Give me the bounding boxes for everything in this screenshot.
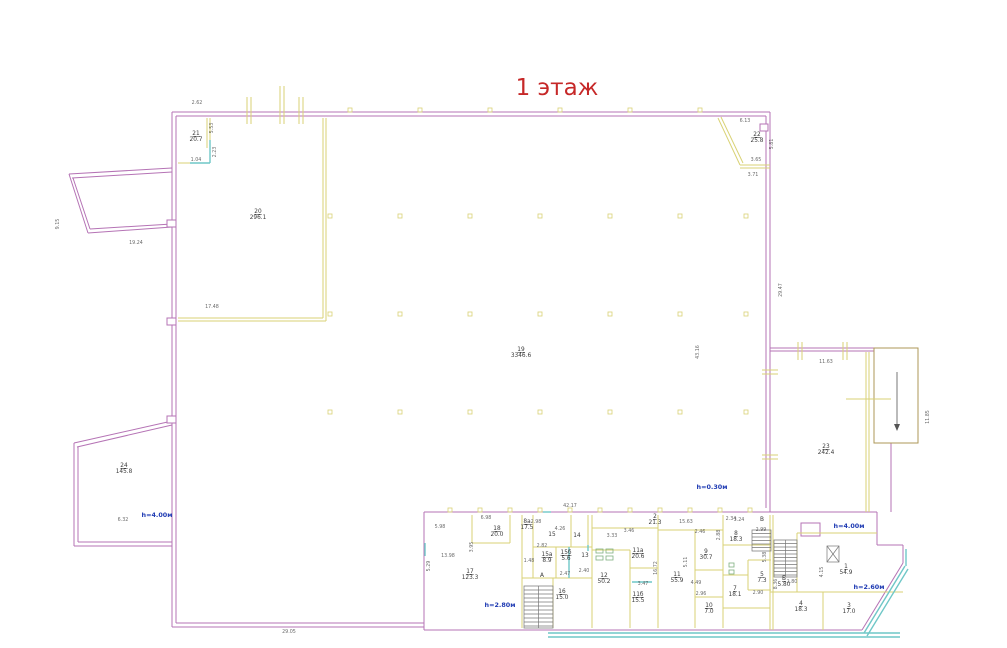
room-label: 13 — [581, 553, 589, 559]
elevator-shaft — [827, 546, 839, 562]
dimension-label: 2.99 — [756, 527, 767, 533]
height-note: h=4.00м — [142, 511, 173, 519]
stair-hatch — [774, 540, 797, 577]
dimension-label: 43.16 — [695, 345, 701, 359]
column-mark — [598, 508, 602, 512]
labels-layer: 193346.620296.12120.72225.823242.424145.… — [55, 100, 931, 635]
dimension-label: 3.71 — [748, 172, 759, 178]
column-mark — [608, 410, 612, 414]
column-mark — [398, 312, 402, 316]
dimension-label: 2.62 — [192, 100, 203, 106]
column-mark — [538, 410, 542, 414]
column-mark — [418, 108, 422, 112]
column-mark — [748, 508, 752, 512]
dimension-label: 2.47 — [560, 571, 571, 577]
column-mark — [558, 108, 562, 112]
column-mark — [478, 508, 482, 512]
outer-walls — [69, 112, 903, 630]
dimension-label: 17.48 — [205, 304, 219, 310]
room-label: 11б15.5 — [632, 592, 645, 604]
height-note: h=2.60м — [854, 583, 885, 591]
column-mark — [718, 508, 722, 512]
room-label: В — [760, 517, 764, 523]
room-label: А — [540, 573, 544, 579]
column-mark — [678, 214, 682, 218]
room-label: 14 — [573, 533, 581, 539]
room-label: 154.9 — [840, 564, 853, 576]
room-label: 930.7 — [700, 549, 713, 561]
column-mark — [608, 312, 612, 316]
stair-hatch — [752, 530, 771, 551]
column-mark — [488, 108, 492, 112]
dimension-label: 2.46 — [695, 529, 706, 535]
dimension-label: 15.63 — [679, 519, 693, 525]
column-mark — [328, 214, 332, 218]
ramp-arrowhead-icon — [894, 424, 900, 431]
dimension-label: 5.98 — [435, 524, 446, 530]
dimension-label: 42.17 — [563, 503, 577, 509]
room-label: 15 — [548, 532, 556, 538]
room-label: 221.3 — [649, 514, 662, 526]
column-mark — [328, 410, 332, 414]
height-note: h=4.00м — [834, 522, 865, 530]
dimension-label: 29.47 — [778, 283, 784, 297]
dimension-label: 3.95 — [469, 542, 475, 553]
dimension-label: 2.98 — [531, 519, 542, 525]
dimension-label: 5.81 — [769, 139, 775, 150]
room-label: 2225.8 — [751, 132, 764, 144]
column-mark — [678, 410, 682, 414]
structural-columns — [328, 108, 752, 512]
dimension-label: 2.88 — [716, 530, 722, 541]
room-label: 17123.3 — [462, 569, 479, 581]
room-label: 24145.8 — [116, 463, 133, 475]
dimension-label: 2.82 — [537, 543, 548, 549]
room-label: 1155.9 — [671, 572, 684, 584]
dimension-label: 3.24 — [734, 517, 745, 523]
dimension-label: 3.33 — [607, 533, 618, 539]
ramp-enclosure — [874, 348, 918, 443]
column-mark — [398, 410, 402, 414]
column-mark — [468, 410, 472, 414]
room-label: 57.3 — [757, 572, 767, 584]
floor-plan-drawing: 1 этаж — [0, 0, 1007, 648]
dimension-label: 6.32 — [118, 517, 129, 523]
column-mark — [608, 214, 612, 218]
dimension-label: 2.90 — [753, 590, 764, 596]
column-mark — [448, 508, 452, 512]
dimension-label: 1.48 — [524, 558, 535, 564]
room-label: 23242.4 — [818, 444, 835, 456]
room-label: 193346.6 — [511, 347, 532, 359]
room-label: 818.3 — [730, 531, 743, 543]
room-label: 11а20.6 — [632, 548, 645, 560]
dimension-label: 4.15 — [819, 567, 825, 578]
room-label: 15а8.9 — [542, 552, 553, 564]
dimension-label: 4.49 — [691, 580, 702, 586]
column-mark — [688, 508, 692, 512]
column-mark — [538, 312, 542, 316]
column-mark — [538, 508, 542, 512]
column-mark — [678, 312, 682, 316]
dimension-label: 5.53 — [209, 123, 215, 134]
dimension-label: 5.38 — [762, 552, 768, 563]
column-mark — [508, 508, 512, 512]
dimension-label: 2.40 — [579, 568, 590, 574]
dimension-label: 4.26 — [555, 526, 566, 532]
dimension-label: 16.72 — [653, 561, 659, 575]
floor-plan-page: 1 этаж — [0, 0, 1007, 648]
height-note: h=0.30м — [697, 483, 728, 491]
dimension-label: 11.85 — [925, 410, 931, 424]
room-label: 1250.2 — [598, 573, 611, 585]
column-mark — [744, 312, 748, 316]
column-mark — [468, 214, 472, 218]
page-title: 1 этаж — [516, 75, 599, 101]
dimension-label: 3.47 — [638, 581, 649, 587]
dimension-label: 1.04 — [191, 157, 202, 163]
column-mark — [744, 214, 748, 218]
stair-hatch — [524, 586, 553, 628]
column-mark — [328, 312, 332, 316]
dimension-label: 5.11 — [683, 557, 689, 568]
room-label: 1615.0 — [556, 589, 569, 601]
dimension-label: 2.23 — [212, 147, 218, 158]
dimension-label: 3.46 — [624, 528, 635, 534]
dimension-label: 19.24 — [129, 240, 143, 246]
height-note: h=2.80м — [485, 601, 516, 609]
room-label: 107.0 — [704, 603, 714, 615]
dimension-label: 3.65 — [751, 157, 762, 163]
dimension-label: 11.63 — [819, 359, 833, 365]
room-label: 317.0 — [843, 603, 856, 615]
dimension-label: 29.05 — [282, 629, 296, 635]
column-mark — [398, 214, 402, 218]
column-mark — [348, 108, 352, 112]
room-label: 418.3 — [795, 601, 808, 613]
dimension-label: 6.13 — [740, 118, 751, 124]
column-mark — [468, 312, 472, 316]
dimension-label: 2.96 — [696, 591, 707, 597]
column-mark — [538, 214, 542, 218]
dimension-label: 9.15 — [55, 219, 61, 230]
column-mark — [744, 410, 748, 414]
dimension-label: 8.36 — [773, 579, 779, 590]
room-label: 718.1 — [729, 586, 742, 598]
room-label: 15б5.6 — [561, 550, 572, 562]
dimension-label: 6.98 — [481, 515, 492, 521]
dimension-label: 2.80 — [787, 579, 798, 585]
room-label: 20296.1 — [250, 209, 267, 221]
room-label: 1820.0 — [491, 526, 504, 538]
dimension-label: 13.98 — [441, 553, 455, 559]
dimension-label: 5.29 — [426, 561, 432, 572]
column-mark — [628, 108, 632, 112]
column-mark — [658, 508, 662, 512]
column-mark — [628, 508, 632, 512]
column-mark — [698, 108, 702, 112]
room-label: 2120.7 — [190, 131, 203, 143]
